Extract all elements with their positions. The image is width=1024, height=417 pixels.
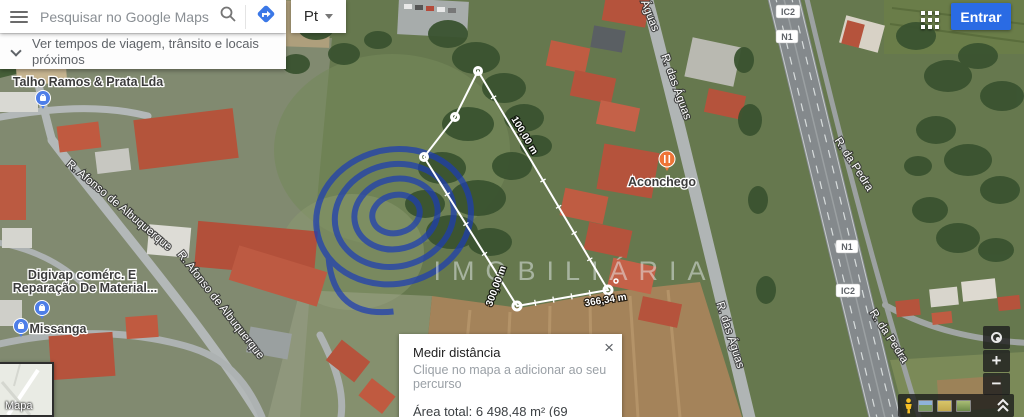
zoom-out-button[interactable]: − bbox=[983, 373, 1010, 395]
poi-label-aconchego[interactable]: Aconchego bbox=[628, 175, 696, 189]
road-badge: IC2 bbox=[841, 286, 855, 296]
search-input[interactable] bbox=[38, 8, 217, 26]
apps-grid-icon[interactable] bbox=[921, 11, 941, 31]
minimap-label: Mapa bbox=[5, 400, 33, 412]
language-selector[interactable]: Pt bbox=[291, 0, 346, 33]
search-box bbox=[0, 0, 286, 33]
google-maps-window: IMOBILIÁRIA bbox=[0, 0, 1024, 417]
poi-label-talho[interactable]: Talho Ramos & Prata Lda bbox=[13, 75, 165, 89]
menu-icon[interactable] bbox=[10, 11, 28, 23]
imagery-thumbnail[interactable] bbox=[956, 400, 971, 412]
chevron-down-icon bbox=[325, 14, 333, 19]
imagery-thumbnail[interactable] bbox=[937, 400, 952, 412]
measure-distance-card: × Medir distância Clique no mapa a adici… bbox=[399, 334, 622, 417]
travel-times-suggestion[interactable]: Ver tempos de viagem, trânsito e locais … bbox=[0, 33, 286, 69]
road-badge: IC2 bbox=[781, 7, 795, 17]
divider bbox=[245, 5, 246, 29]
zoom-in-button[interactable]: + bbox=[983, 350, 1010, 372]
chevron-up-double-icon[interactable] bbox=[997, 398, 1009, 413]
measure-card-title: Medir distância bbox=[413, 345, 608, 360]
poi-label-digivap-1[interactable]: Digivap comérc. E bbox=[28, 268, 136, 282]
language-label: Pt bbox=[304, 8, 318, 25]
poi-label-digivap-2[interactable]: Reparação De Material... bbox=[13, 281, 158, 295]
sign-in-button[interactable]: Entrar bbox=[951, 3, 1011, 30]
imagery-bar bbox=[898, 394, 1014, 417]
map-mode-toggle[interactable]: Mapa bbox=[0, 362, 54, 417]
chevron-down-icon bbox=[10, 45, 21, 56]
my-location-icon bbox=[991, 332, 1002, 343]
directions-icon[interactable] bbox=[256, 4, 276, 29]
search-icon[interactable] bbox=[219, 5, 237, 28]
area-total: Área total: 6 498,48 m² (69 949,04 pé²) bbox=[413, 402, 608, 417]
measure-card-hint: Clique no mapa a adicionar ao seu percur… bbox=[413, 363, 608, 391]
imagery-thumbnail[interactable] bbox=[918, 400, 933, 412]
close-icon[interactable]: × bbox=[604, 338, 614, 358]
suggestion-label: Ver tempos de viagem, trânsito e locais … bbox=[32, 36, 270, 68]
my-location-button[interactable] bbox=[983, 326, 1010, 349]
pegman-icon[interactable] bbox=[903, 398, 914, 414]
poi-label-missanga[interactable]: Missanga bbox=[30, 322, 88, 336]
watermark-text: IMOBILIÁRIA bbox=[433, 256, 716, 286]
road-badge: N1 bbox=[841, 242, 853, 252]
road-badge: N1 bbox=[781, 32, 793, 42]
